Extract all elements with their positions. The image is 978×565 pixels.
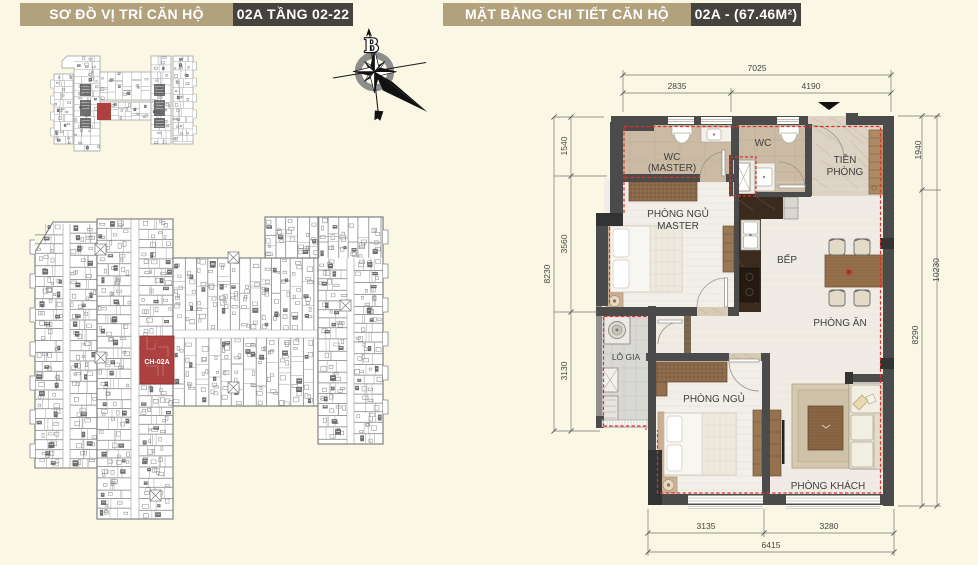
svg-text:8290: 8290: [910, 325, 920, 344]
svg-text:PHÒNG KHÁCH: PHÒNG KHÁCH: [791, 479, 865, 492]
svg-text:4190: 4190: [802, 81, 821, 91]
svg-text:CH-02A: CH-02A: [144, 359, 169, 366]
svg-text:PHÒNG: PHÒNG: [827, 165, 864, 178]
svg-text:PHÒNG NGỦ: PHÒNG NGỦ: [683, 392, 745, 405]
svg-text:3280: 3280: [820, 521, 839, 531]
svg-text:PHÒNG NGỦ: PHÒNG NGỦ: [647, 207, 709, 220]
svg-text:3135: 3135: [697, 521, 716, 531]
svg-text:6415: 6415: [762, 540, 781, 550]
svg-text:BẾP: BẾP: [777, 253, 797, 266]
svg-text:1940: 1940: [913, 140, 923, 159]
svg-text:10230: 10230: [931, 258, 941, 282]
svg-text:3560: 3560: [559, 234, 569, 253]
svg-text:3130: 3130: [559, 361, 569, 380]
svg-text:MASTER: MASTER: [657, 221, 699, 232]
svg-text:PHÒNG ĂN: PHÒNG ĂN: [813, 316, 866, 329]
svg-text:(MASTER): (MASTER): [648, 163, 696, 174]
svg-text:WC: WC: [664, 152, 681, 163]
svg-text:2835: 2835: [668, 81, 687, 91]
svg-text:7025: 7025: [748, 63, 767, 73]
svg-text:LÔ GIA: LÔ GIA: [612, 352, 641, 362]
svg-text:1540: 1540: [559, 136, 569, 155]
svg-text:WC: WC: [755, 138, 772, 149]
svg-text:TIỀN: TIỀN: [834, 153, 857, 166]
svg-text:8230: 8230: [542, 264, 552, 283]
